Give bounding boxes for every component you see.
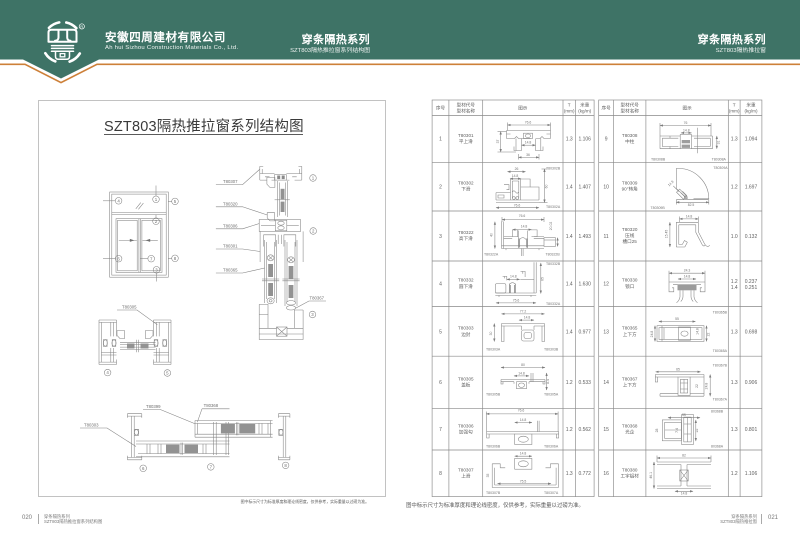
svg-text:T80306B: T80306B (486, 445, 501, 449)
svg-text:14.8: 14.8 (525, 141, 532, 145)
svg-text:65: 65 (541, 277, 545, 281)
svg-text:槽口25: 槽口25 (623, 238, 638, 245)
svg-text:6: 6 (439, 380, 442, 386)
svg-text:T80303: T80303 (458, 326, 474, 331)
svg-text:T80308B: T80308B (651, 157, 666, 161)
svg-text:10: 10 (603, 184, 609, 190)
svg-text:24.3: 24.3 (684, 269, 691, 273)
svg-text:1.4: 1.4 (731, 285, 738, 291)
svg-text:1.3: 1.3 (566, 471, 573, 477)
svg-text:序号: 序号 (601, 105, 611, 112)
svg-text:T80305A: T80305A (544, 393, 559, 397)
svg-text:1.407: 1.407 (578, 184, 591, 190)
svg-text:5: 5 (174, 199, 177, 204)
svg-text:15: 15 (603, 427, 609, 433)
svg-text:T80380: T80380 (622, 467, 638, 472)
svg-text:22: 22 (695, 384, 699, 388)
svg-text:6: 6 (142, 466, 145, 471)
svg-text:平上滑: 平上滑 (459, 138, 473, 145)
svg-text:1.697: 1.697 (745, 184, 758, 190)
svg-text:7: 7 (210, 465, 213, 470)
svg-text:型材名称: 型材名称 (621, 107, 640, 114)
svg-text:上下方: 上下方 (623, 331, 637, 338)
svg-text:0.801: 0.801 (745, 427, 758, 433)
svg-text:T80365: T80365 (223, 268, 238, 273)
svg-text:T80305B: T80305B (486, 393, 501, 397)
svg-text:30: 30 (489, 332, 493, 336)
svg-text:13: 13 (603, 330, 609, 336)
svg-text:76.6: 76.6 (514, 203, 521, 207)
svg-text:T80307B: T80307B (486, 491, 501, 495)
svg-text:1.106: 1.106 (578, 137, 591, 143)
svg-text:14.8: 14.8 (686, 214, 693, 218)
svg-text:T80308: T80308 (622, 133, 638, 138)
svg-text:80368B: 80368B (711, 410, 724, 414)
svg-text:T80303: T80303 (84, 423, 99, 428)
svg-text:1: 1 (439, 137, 442, 143)
svg-text:T80320: T80320 (223, 201, 238, 206)
svg-text:T: T (733, 102, 736, 107)
svg-text:7: 7 (439, 427, 442, 433)
svg-text:0.562: 0.562 (578, 427, 591, 433)
svg-text:T80301: T80301 (458, 133, 474, 138)
svg-text:7.4: 7.4 (675, 428, 679, 433)
svg-text:1.4: 1.4 (566, 234, 573, 240)
svg-text:1.2: 1.2 (566, 427, 573, 433)
svg-text:14.8: 14.8 (521, 224, 528, 228)
svg-text:T80332B: T80332B (546, 262, 561, 266)
svg-text:T80320: T80320 (622, 227, 638, 232)
svg-text:6: 6 (117, 256, 120, 261)
svg-text:高下滑: 高下滑 (459, 235, 473, 242)
svg-text:T80367: T80367 (310, 296, 325, 301)
svg-text:盖板: 盖板 (461, 382, 471, 389)
svg-text:8: 8 (284, 463, 287, 468)
svg-text:14.8: 14.8 (696, 328, 700, 335)
svg-text:(mm): (mm) (729, 108, 740, 113)
svg-text:1.4: 1.4 (566, 330, 573, 336)
svg-text:4: 4 (106, 370, 109, 375)
svg-text:T80367B: T80367B (713, 363, 728, 367)
svg-text:14.8: 14.8 (524, 316, 531, 320)
svg-text:76.6: 76.6 (525, 120, 532, 124)
svg-text:1.3: 1.3 (731, 427, 738, 433)
svg-text:1.106: 1.106 (745, 471, 758, 477)
svg-text:60: 60 (545, 185, 549, 189)
svg-text:14.8: 14.8 (681, 492, 688, 496)
svg-text:(mm): (mm) (564, 108, 575, 113)
svg-text:序号: 序号 (436, 105, 446, 112)
svg-text:T80322B: T80322B (546, 252, 561, 256)
svg-text:28: 28 (655, 429, 659, 433)
svg-text:76.6: 76.6 (518, 409, 525, 413)
svg-text:14.8: 14.8 (518, 371, 525, 375)
svg-text:22: 22 (706, 333, 710, 337)
svg-text:80: 80 (521, 363, 525, 367)
svg-text:T80305: T80305 (458, 376, 474, 381)
svg-text:1: 1 (155, 197, 158, 202)
svg-text:T80307: T80307 (223, 179, 238, 184)
svg-text:3: 3 (439, 234, 442, 240)
svg-text:型材名称: 型材名称 (457, 107, 476, 114)
svg-text:1.493: 1.493 (578, 234, 591, 240)
svg-text:3: 3 (311, 312, 314, 317)
svg-text:9: 9 (605, 137, 608, 143)
svg-text:圆下滑: 圆下滑 (459, 283, 473, 290)
svg-text:型材代号: 型材代号 (457, 101, 476, 108)
svg-text:1.0: 1.0 (731, 234, 738, 240)
svg-text:1.3: 1.3 (731, 380, 738, 386)
svg-text:1: 1 (312, 176, 315, 181)
svg-text:15.45: 15.45 (665, 230, 669, 239)
svg-text:55: 55 (682, 413, 686, 417)
svg-text:14.8: 14.8 (520, 452, 527, 456)
svg-text:46.1: 46.1 (649, 472, 653, 479)
svg-text:(kg/m): (kg/m) (578, 108, 591, 113)
svg-text:T80368: T80368 (622, 423, 638, 428)
svg-text:1.4: 1.4 (566, 184, 573, 190)
svg-text:1.2: 1.2 (731, 184, 738, 190)
svg-text:76.6: 76.6 (519, 214, 526, 218)
svg-text:T80330: T80330 (622, 278, 638, 283)
svg-text:82: 82 (682, 454, 686, 458)
svg-text:26: 26 (515, 167, 519, 171)
svg-text:T80309B: T80309B (651, 206, 666, 210)
svg-text:55: 55 (675, 317, 679, 321)
svg-text:光企: 光企 (625, 428, 635, 435)
svg-text:8: 8 (439, 471, 442, 477)
svg-text:T80332A: T80332A (546, 302, 561, 306)
svg-text:T80308A: T80308A (712, 157, 727, 161)
svg-text:T80367: T80367 (622, 376, 638, 381)
svg-text:36: 36 (526, 153, 530, 157)
svg-text:40: 40 (489, 233, 493, 237)
svg-text:T80367A: T80367A (713, 397, 728, 401)
svg-text:14: 14 (603, 380, 609, 386)
svg-text:T80368: T80368 (204, 403, 219, 408)
svg-text:图示: 图示 (518, 106, 528, 112)
svg-text:边封: 边封 (461, 331, 471, 338)
svg-text:上滑: 上滑 (461, 472, 471, 478)
svg-text:T80309: T80309 (622, 181, 638, 186)
svg-text:T80332: T80332 (458, 278, 474, 283)
svg-text:0.251: 0.251 (745, 285, 758, 291)
svg-text:下滑: 下滑 (461, 186, 471, 193)
svg-text:T: T (568, 102, 571, 107)
svg-text:1.630: 1.630 (578, 282, 591, 288)
svg-text:T80306A: T80306A (544, 445, 559, 449)
svg-text:65: 65 (676, 367, 680, 371)
svg-text:T80365B: T80365B (713, 310, 728, 314)
svg-text:2: 2 (312, 229, 315, 234)
svg-text:T80365: T80365 (622, 326, 638, 331)
svg-text:T80303B: T80303B (544, 348, 559, 352)
svg-text:T80302: T80302 (458, 181, 474, 186)
svg-text:11: 11 (603, 234, 608, 240)
svg-text:31: 31 (717, 141, 721, 145)
svg-text:7: 7 (150, 256, 153, 261)
svg-text:T80309A: T80309A (713, 166, 728, 170)
svg-text:4: 4 (439, 282, 442, 288)
svg-text:T80307A: T80307A (544, 491, 559, 495)
svg-text:1.3: 1.3 (566, 137, 573, 143)
svg-text:82.5: 82.5 (688, 203, 695, 207)
svg-text:T80322A: T80322A (484, 252, 499, 256)
svg-text:4: 4 (117, 198, 120, 203)
svg-text:75.6: 75.6 (513, 298, 520, 302)
svg-text:5: 5 (439, 330, 442, 336)
svg-text:0.533: 0.533 (578, 380, 591, 386)
svg-text:T80399: T80399 (146, 404, 161, 409)
svg-text:0.132: 0.132 (745, 234, 758, 240)
svg-text:14.8: 14.8 (510, 274, 517, 278)
svg-text:T80306: T80306 (223, 223, 238, 228)
svg-text:2: 2 (155, 219, 158, 224)
svg-text:压线: 压线 (625, 232, 635, 239)
svg-text:12: 12 (603, 282, 609, 288)
svg-text:加强勾: 加强勾 (459, 428, 473, 435)
svg-text:20.02: 20.02 (549, 222, 553, 231)
svg-text:T80365A: T80365A (713, 349, 728, 353)
svg-text:80368A: 80368A (711, 444, 724, 448)
svg-text:3: 3 (155, 267, 158, 272)
svg-text:T80307: T80307 (458, 467, 474, 472)
svg-text:T80306: T80306 (458, 423, 474, 428)
svg-text:35: 35 (486, 474, 490, 478)
svg-text:米重: 米重 (580, 101, 590, 108)
svg-text:8: 8 (174, 256, 177, 261)
svg-text:0.977: 0.977 (578, 330, 591, 336)
svg-text:14.8: 14.8 (683, 128, 690, 132)
svg-text:工字铝材: 工字铝材 (621, 472, 640, 479)
svg-text:77.2: 77.2 (520, 309, 527, 313)
svg-text:0.698: 0.698 (745, 330, 758, 336)
svg-text:T80302B: T80302B (546, 167, 561, 171)
svg-text:T80302A: T80302A (546, 205, 561, 209)
svg-text:16: 16 (603, 471, 609, 477)
svg-text:75.5: 75.5 (520, 479, 527, 483)
svg-text:1.4: 1.4 (566, 282, 573, 288)
svg-text:14.8: 14.8 (520, 418, 527, 422)
svg-text:中柱: 中柱 (625, 138, 635, 145)
svg-text:上下方: 上下方 (623, 382, 637, 389)
svg-text:2: 2 (439, 184, 442, 190)
svg-text:37: 37 (496, 140, 500, 144)
svg-text:0.772: 0.772 (578, 471, 591, 477)
svg-text:14.8: 14.8 (684, 275, 691, 279)
svg-text:图示: 图示 (682, 106, 692, 112)
svg-text:5: 5 (166, 371, 169, 376)
svg-text:1.094: 1.094 (745, 137, 758, 143)
svg-text:14.8: 14.8 (512, 174, 519, 178)
svg-text:T80305: T80305 (122, 305, 137, 310)
svg-text:76: 76 (684, 121, 688, 125)
svg-text:24.8: 24.8 (705, 383, 709, 390)
svg-text:1.3: 1.3 (731, 330, 738, 336)
svg-text:T80322: T80322 (458, 230, 474, 235)
svg-text:1.3: 1.3 (731, 137, 738, 143)
svg-text:(kg/m): (kg/m) (744, 108, 757, 113)
svg-text:90°转角: 90°转角 (622, 186, 639, 193)
svg-text:型材代号: 型材代号 (621, 101, 640, 108)
svg-text:米重: 米重 (746, 101, 756, 108)
svg-text:T80303A: T80303A (486, 348, 501, 352)
svg-text:24.8: 24.8 (650, 331, 654, 338)
svg-text:锁口: 锁口 (625, 283, 635, 290)
svg-text:1.2: 1.2 (731, 471, 738, 477)
svg-text:T80301: T80301 (223, 244, 238, 249)
svg-text:0.906: 0.906 (745, 380, 758, 386)
svg-text:1.2: 1.2 (566, 380, 573, 386)
